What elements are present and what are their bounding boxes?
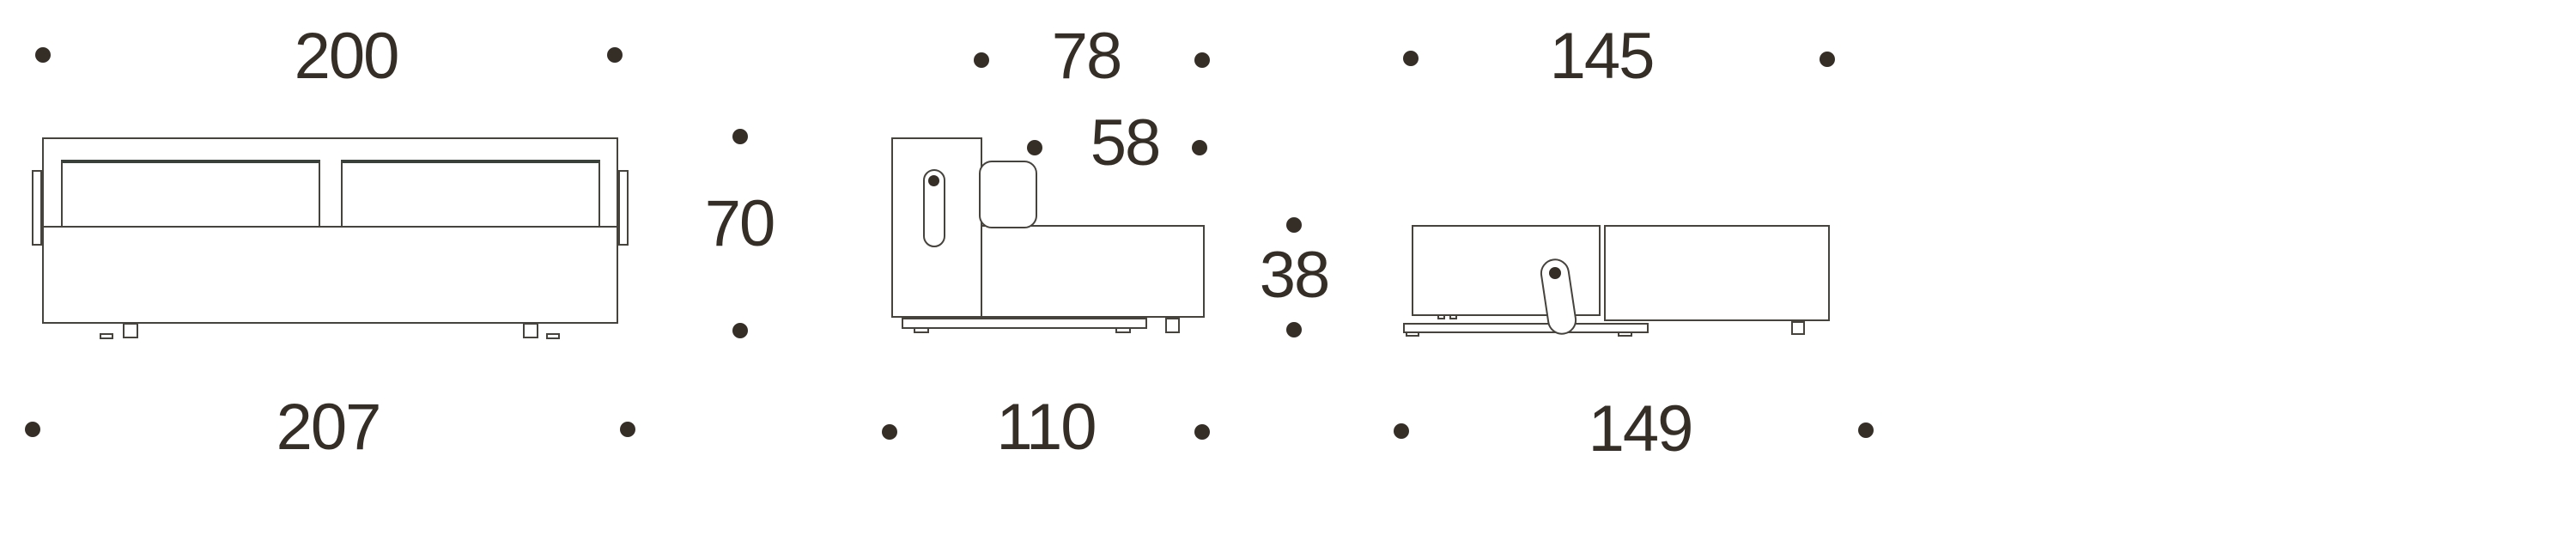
dim-front-bottom-width: 207	[276, 395, 380, 460]
dimension-dot	[1394, 423, 1409, 439]
bed-base-pad-mid	[1618, 331, 1632, 337]
dimension-dot	[620, 422, 635, 437]
front-foot-left	[123, 323, 138, 338]
dim-side-upper-depth: 78	[1052, 24, 1121, 89]
dimension-dot	[1192, 140, 1207, 155]
front-armrest-slat-right	[618, 170, 629, 246]
dimension-dot	[974, 52, 989, 68]
dimension-dot	[1194, 424, 1210, 440]
front-foot-pad-right	[546, 333, 560, 339]
bed-base-pad-left	[1406, 331, 1419, 337]
side-armrest	[979, 161, 1037, 228]
dim-side-seat-depth: 58	[1091, 111, 1160, 176]
side-foot-right	[1165, 318, 1180, 333]
side-base-pad-right	[1115, 327, 1131, 333]
dimension-dot	[882, 424, 897, 440]
bed-foot-right	[1791, 321, 1805, 335]
technical-drawing-canvas: 200 70 207 78 58 38	[0, 0, 2576, 541]
bed-tick-left	[1437, 314, 1445, 319]
front-armrest-slat-left	[32, 170, 42, 246]
bed-mattress-right	[1604, 225, 1830, 321]
bed-swing-leg-pivot-dot	[1549, 267, 1561, 279]
dimension-dot	[732, 323, 748, 338]
side-base-plinth	[902, 318, 1147, 329]
dimension-dot	[35, 47, 51, 63]
dim-side-total-depth: 110	[996, 395, 1095, 460]
dimension-dot	[1027, 140, 1042, 155]
front-back-cushion-right	[341, 160, 600, 228]
dimension-dot	[1403, 51, 1419, 66]
dim-front-top-width: 200	[295, 24, 398, 89]
dim-bed-top-length: 145	[1550, 24, 1654, 89]
bed-tick-right	[1449, 314, 1457, 319]
dim-side-seat-height: 38	[1260, 243, 1329, 308]
dimension-dot	[1286, 322, 1302, 337]
dimension-dot	[25, 422, 40, 437]
side-base-pad-left	[914, 327, 929, 333]
dimension-dot	[607, 47, 623, 63]
dimension-dot	[1820, 52, 1835, 67]
dim-bed-bottom-length: 149	[1589, 397, 1692, 462]
dimension-dot	[1286, 217, 1302, 233]
dimension-dot	[1194, 52, 1210, 68]
side-handle-pivot-dot	[928, 175, 939, 186]
dimension-dot	[1858, 422, 1874, 438]
dim-front-height: 70	[705, 191, 775, 257]
front-foot-pad-left	[100, 333, 113, 339]
front-foot-right	[523, 323, 538, 338]
front-back-cushion-left	[61, 160, 320, 228]
bed-base-rail	[1403, 323, 1649, 333]
dimension-dot	[732, 129, 748, 144]
side-seat-body	[981, 225, 1205, 318]
